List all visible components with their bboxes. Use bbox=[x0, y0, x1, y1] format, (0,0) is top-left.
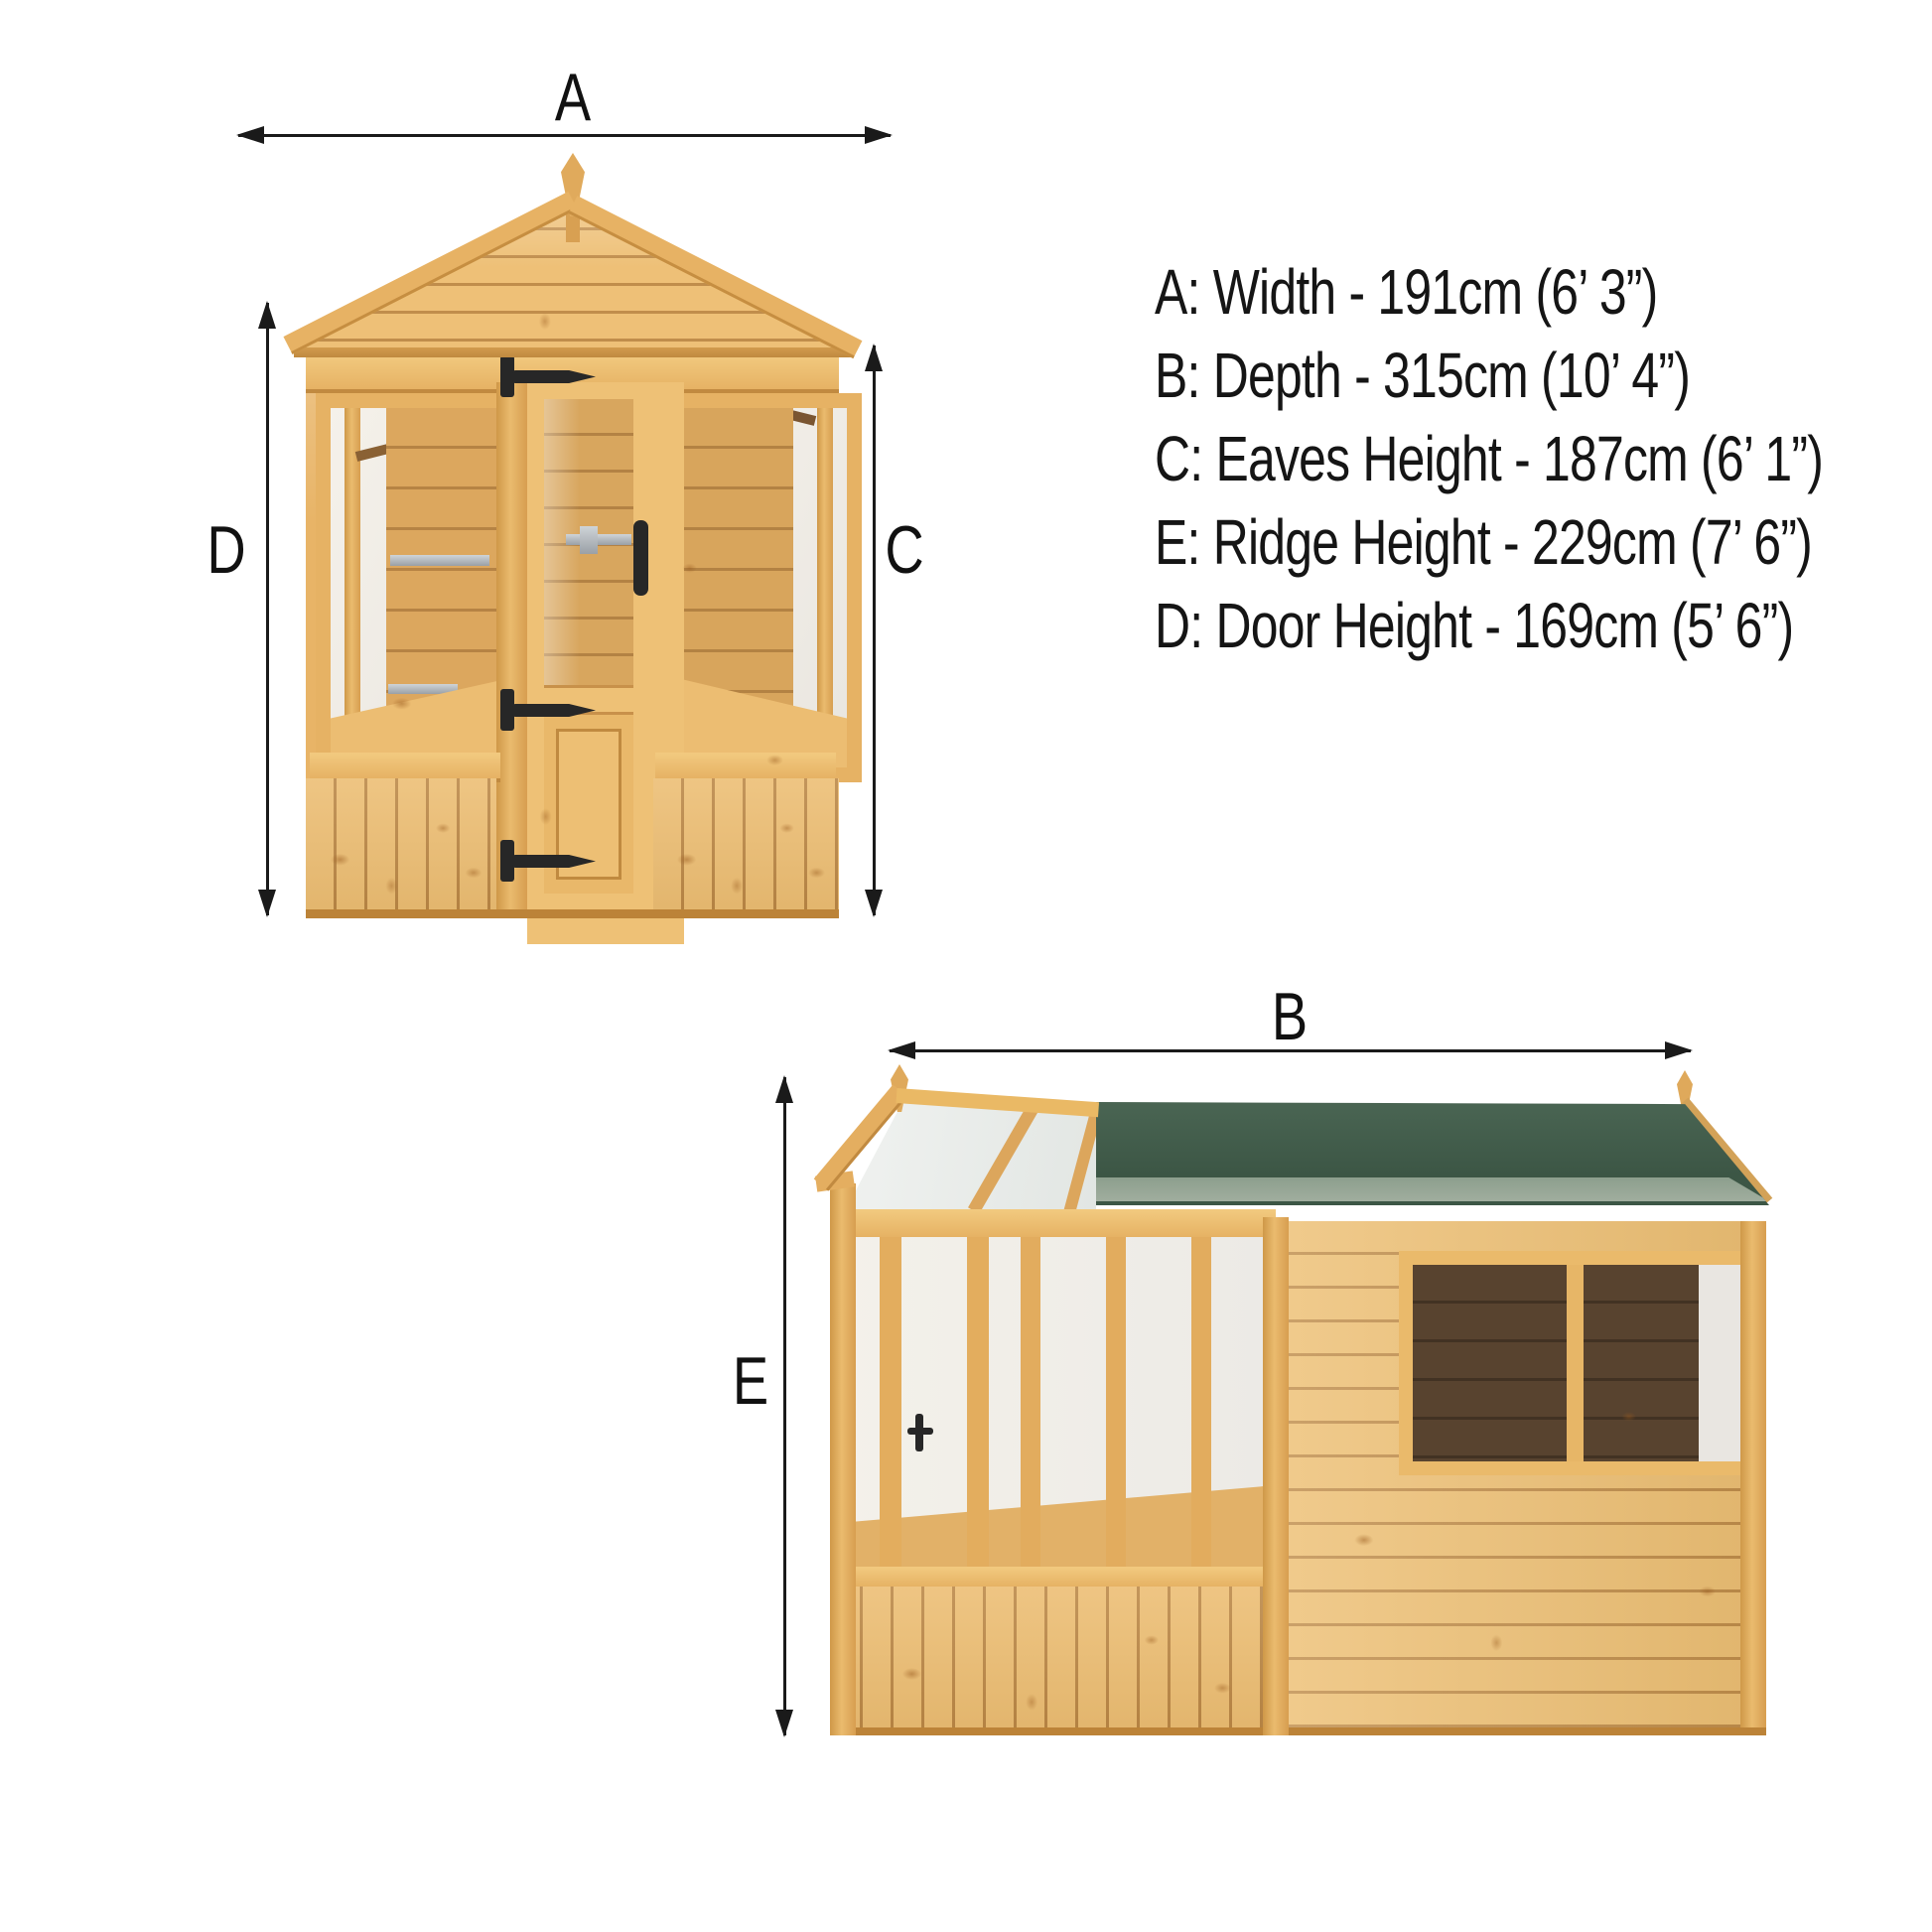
door-hinge-top bbox=[500, 355, 610, 397]
door-hinge-middle bbox=[500, 689, 610, 731]
front-base bbox=[306, 909, 839, 918]
product-dimension-diagram: A bbox=[0, 0, 1932, 1932]
section-junction-trim bbox=[1263, 1217, 1289, 1735]
front-right-window bbox=[661, 393, 862, 782]
front-left-window bbox=[316, 393, 526, 782]
dimension-label-c: C bbox=[869, 514, 940, 586]
spec-ridge-height: E: Ridge Height - 229cm (7’ 6”) bbox=[1155, 500, 1823, 584]
door-latch-hasp bbox=[566, 534, 631, 545]
shed-wall bbox=[1276, 1221, 1766, 1735]
dimension-label-d: D bbox=[191, 514, 262, 586]
spec-depth: B: Depth - 315cm (10’ 4”) bbox=[1155, 334, 1823, 417]
shed-window bbox=[1399, 1251, 1760, 1475]
spec-width: A: Width - 191cm (6’ 3”) bbox=[1155, 250, 1823, 334]
shed-corner-trim bbox=[1740, 1221, 1766, 1735]
front-left-plank-panel bbox=[306, 778, 496, 909]
roof-gravel-edge bbox=[1096, 1177, 1769, 1201]
greenhouse-plank-panel bbox=[832, 1587, 1276, 1727]
front-elevation: A bbox=[0, 0, 966, 966]
roof-glazing-bar-2 bbox=[1061, 1112, 1102, 1222]
shed-base bbox=[1276, 1727, 1766, 1735]
spec-eaves-height: C: Eaves Height - 187cm (6’ 1”) bbox=[1155, 417, 1823, 500]
door-height-arrow bbox=[266, 303, 269, 915]
door-hinge-bottom bbox=[500, 840, 610, 882]
dimension-label-b: B bbox=[1254, 981, 1325, 1052]
greenhouse-mullion-1 bbox=[1021, 1237, 1040, 1567]
greenhouse-wall bbox=[832, 1209, 1276, 1735]
greenhouse-mullion-3 bbox=[1191, 1237, 1211, 1567]
door-handle bbox=[633, 520, 648, 596]
greenhouse-glazing bbox=[832, 1237, 1276, 1567]
front-wall bbox=[306, 353, 839, 918]
greenhouse-door-stile-right bbox=[967, 1237, 989, 1567]
door-post-left bbox=[496, 382, 527, 918]
front-right-plank-panel bbox=[653, 778, 839, 909]
roof-glazing-bar bbox=[968, 1106, 1037, 1214]
shed-felt-roof bbox=[1096, 1102, 1769, 1205]
dimension-label-a: A bbox=[537, 62, 609, 133]
side-elevation: B E bbox=[0, 966, 1932, 1932]
greenhouse-door-stile-left bbox=[880, 1237, 901, 1567]
eaves-height-arrow bbox=[873, 345, 876, 915]
shed-window-light-pane bbox=[1699, 1265, 1746, 1461]
greenhouse-base bbox=[832, 1727, 1276, 1735]
dimension-spec-list: A: Width - 191cm (6’ 3”) B: Depth - 315c… bbox=[1155, 250, 1932, 667]
shed-window-mullion bbox=[1567, 1265, 1584, 1461]
greenhouse-door-handle-bar bbox=[907, 1428, 933, 1435]
interior-hinge-strap bbox=[390, 555, 489, 566]
greenhouse-interior-floor bbox=[852, 1485, 1276, 1567]
greenhouse-mullion-2 bbox=[1106, 1237, 1126, 1567]
greenhouse-corner-post bbox=[830, 1183, 856, 1735]
door-latch-block bbox=[580, 526, 598, 554]
spec-door-height: D: Door Height - 169cm (5’ 6”) bbox=[1155, 584, 1823, 667]
dimension-label-e: E bbox=[715, 1345, 786, 1417]
